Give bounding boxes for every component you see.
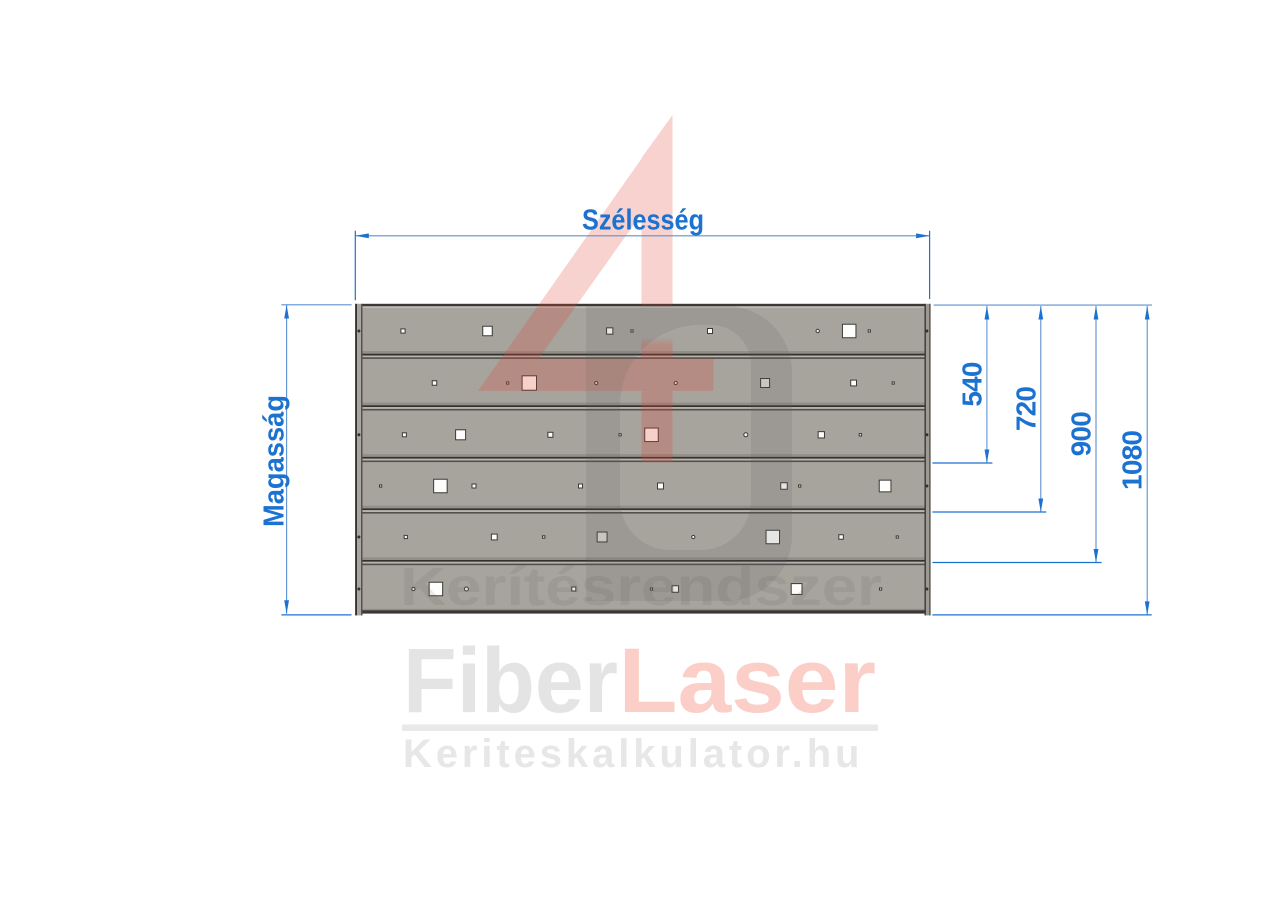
svg-text:Magasság: Magasság xyxy=(259,395,291,527)
svg-text:720: 720 xyxy=(1010,387,1041,432)
svg-text:1080: 1080 xyxy=(1117,431,1148,490)
svg-text:Fiber: Fiber xyxy=(403,630,618,732)
svg-text:Szélesség: Szélesség xyxy=(582,205,704,237)
svg-text:540: 540 xyxy=(956,362,987,407)
svg-text:Kerítésrendszer: Kerítésrendszer xyxy=(400,557,882,617)
svg-text:Keriteskalkulator.hu: Keriteskalkulator.hu xyxy=(403,732,863,776)
svg-text:Laser: Laser xyxy=(619,630,877,732)
svg-text:900: 900 xyxy=(1066,412,1097,457)
